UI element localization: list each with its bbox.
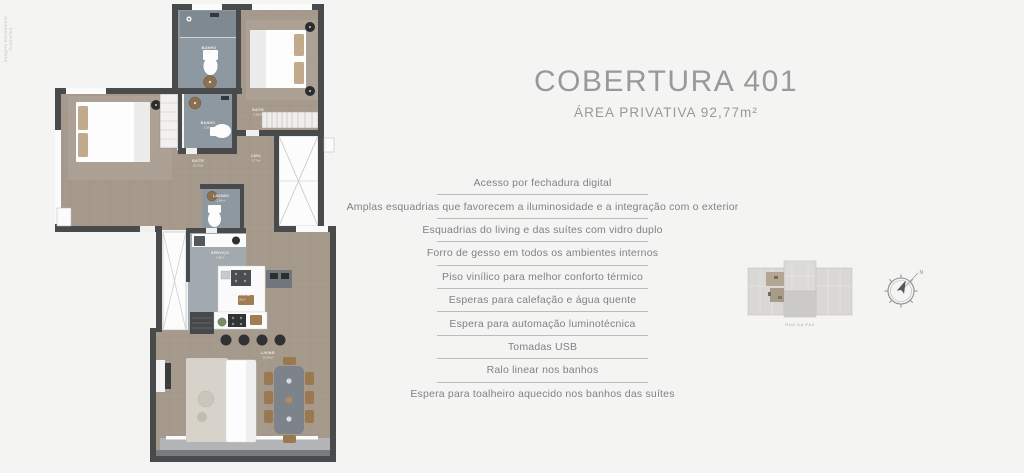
svg-text:7,36m²: 7,36m²	[237, 298, 246, 302]
feature-item: Ralo linear nos banhos	[437, 359, 648, 382]
svg-text:1,98m²: 1,98m²	[205, 51, 214, 55]
closet-suite1	[262, 112, 318, 128]
label-circ: CIRC	[251, 154, 261, 158]
building-footprint: RUA DA PAZ	[740, 252, 880, 332]
floorplan: BANHO 1,98m² SUÍTE 9,86m² BANHO 2,28m² S…	[0, 0, 345, 473]
svg-text:15,75m²: 15,75m²	[193, 164, 204, 168]
feature-item: Amplas esquadrias que favorecem a ilumin…	[437, 195, 648, 218]
label-servico: SERVIÇO	[211, 251, 229, 255]
label-suite1: SUÍTE	[252, 107, 264, 112]
pantry-closet	[163, 232, 186, 330]
page-title: COBERTURA 401	[516, 66, 816, 98]
feature-item: Espera para toalheiro aquecido nos banho…	[437, 383, 648, 406]
svg-text:20,94m²: 20,94m²	[263, 356, 274, 360]
feature-item: Esquadrias do living e das suítes com vi…	[437, 219, 648, 242]
page-subtitle: ÁREA PRIVATIVA 92,77m²	[516, 105, 816, 120]
svg-text:3,86m²: 3,86m²	[216, 256, 225, 260]
label-lavabo: LAVABO	[213, 194, 229, 198]
feature-item: Espera para automação luminotécnica	[437, 312, 648, 335]
feature-item: Acesso por fechadura digital	[437, 172, 648, 195]
svg-text:9,86m²: 9,86m²	[254, 113, 263, 117]
feature-item: Tomadas USB	[437, 336, 648, 359]
servico-fixtures	[192, 234, 246, 247]
street-label: RUA DA PAZ	[785, 322, 814, 327]
feature-item: Piso vinílico para melhor conforto térmi…	[437, 266, 648, 289]
svg-text:1,86m²: 1,86m²	[217, 199, 226, 203]
svg-text:2,28m²: 2,28m²	[204, 126, 213, 130]
suite2-furniture	[68, 94, 178, 180]
compass-icon: N	[878, 266, 926, 314]
label-cozinha: COZINHA	[232, 293, 251, 297]
siteplan: RUA DA PAZ	[740, 252, 880, 332]
label-living: LIVING	[261, 351, 275, 355]
elevator-shaft	[279, 136, 318, 226]
kitchen-dark-cabinet	[190, 312, 214, 334]
feature-item: Forro de gesso em todos os ambientes int…	[437, 242, 648, 265]
header: COBERTURA 401 ÁREA PRIVATIVA 92,77m²	[516, 66, 816, 120]
label-banho2: BANHO	[201, 121, 216, 125]
svg-text:2,77m²: 2,77m²	[252, 159, 261, 163]
compass: N	[878, 266, 926, 314]
page: Imagem meramente ilustrativa	[0, 0, 1024, 473]
label-suite2: SUÍTE	[192, 158, 204, 163]
north-label: N	[920, 270, 924, 276]
floorplan-drawing: BANHO 1,98m² SUÍTE 9,86m² BANHO 2,28m² S…	[0, 0, 345, 473]
features-list: Acesso por fechadura digital Amplas esqu…	[437, 172, 648, 406]
feature-item: Esperas para calefação e água quente	[437, 289, 648, 312]
label-banho1: BANHO	[202, 46, 217, 50]
